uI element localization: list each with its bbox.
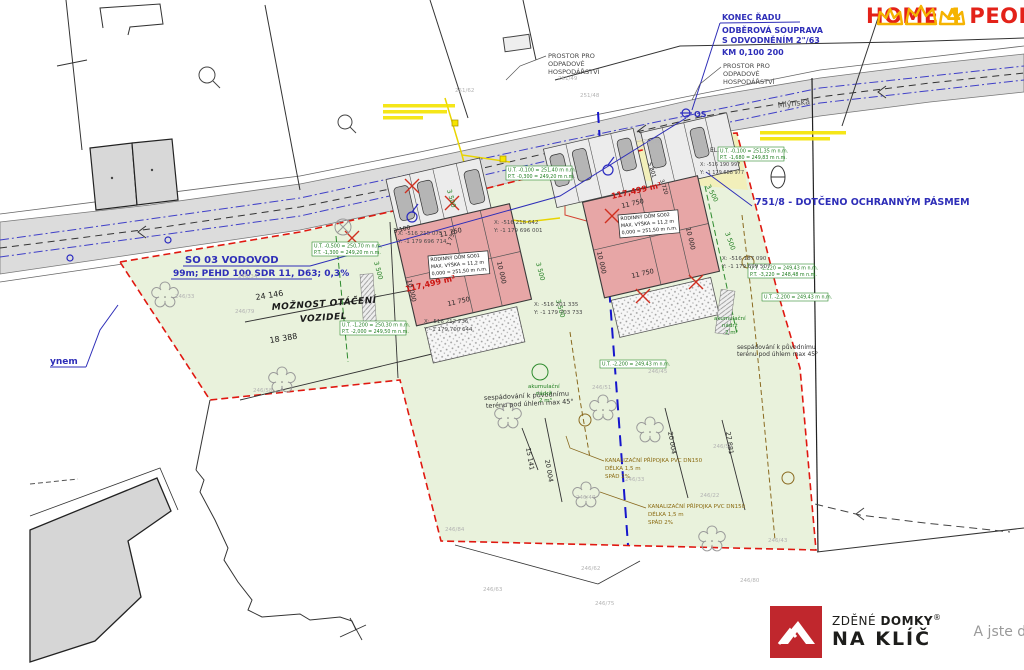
survey-point-symbols [199,34,531,133]
home4people-logo: HOME 4 PEOPLE [866,4,1016,28]
zigzag-boundary [196,470,356,630]
plan-label: 246/47 [576,495,596,501]
plan-label: X: -516 215 075 [398,231,443,237]
plan-label: 251/49 [558,76,578,82]
plan-label: 246/51 [592,385,611,391]
plan-label: ODPADOVÉ [548,59,585,68]
plan-label: Y: -1 179 688 977 [699,170,744,176]
plan-box-line: U.T. -0,100 = 251,40 m n.m. [508,168,576,174]
plan-box-line: U.T. -0,100 = 251,35 m n.m. [720,149,788,155]
note-odvodneni: S ODVODNĚNÍM 2"/63 [722,34,820,45]
naklic-logo: ZDĚNÉ DOMKY® NA KLÍČ A jste doma. [770,598,1020,666]
naklic-zdene: ZDĚNÉ [832,614,876,628]
note-konec-radu: KONEC ŘADU [722,11,781,22]
note-ynem: ynem [50,357,78,367]
plan-label: Y: -1 179 699 507 [721,264,771,270]
plan-label: 246/58 [253,388,273,394]
plan-label: 251/48 [580,93,600,99]
plan-label-box: U.T. -0,100 = 251,40 m n.m.P.T. -0,300 =… [506,166,576,180]
plan-box-line: U.T. -2,200 = 249,43 m n.m. [764,295,832,301]
plan-label: nádrž [722,322,738,329]
plan-box-line: P.T. -2,000 = 249,50 m n.m. [342,329,409,335]
plan-label: SPÁD 2% [648,519,673,526]
crowns-icon [866,4,976,28]
plan-label: 2 m³ [725,329,738,336]
plan-box-line: U.T. -2,200 = 249,43 m n.m. [602,362,670,368]
plan-label: terénu pod úhlem max 45° [737,351,818,358]
plan-box-line: P.T. -1,300 = 249,20 m n.m. [314,250,381,256]
existing-building-bottomleft [30,400,366,662]
plan-label: 246/34 [238,274,258,280]
plan-label: Y: -1 179 696 001 [493,228,542,234]
note-so03-spec: 99m; PEHD 100 SDR 11, D63; 0,3% [173,269,349,279]
plan-label: 246/33 [625,477,645,483]
plan-box-line: P.T. -3,220 = 248,48 m n.m. [750,272,817,278]
existing-building-topleft [90,139,178,210]
plan-label: 246/22 [700,493,719,499]
plan-label: X: -516 187 090 [722,256,767,262]
plan-label: 251/62 [455,88,474,94]
plan-label: 246/75 [595,601,615,607]
plan-label: Y: -1 179 696 714 [397,239,447,245]
plan-box-line: P.T. -1,680 = 249,83 m n.m. [720,155,787,161]
plan-box-line: P.T. -0,300 = 249,20 m n.m. [508,174,575,180]
plan-label: 2 m³ [539,397,552,404]
plan-label: Y: -1 179 703 733 [533,310,583,316]
plan-label: PROSTOR PRO [723,62,770,70]
site-plan-drawing: RODINNÝ DŮM SO01MAX. VÝŠKA = 11,2 m0,000… [0,0,1024,670]
plan-label: 246/80 [740,578,760,584]
note-akumulacni-nadrz: akumulační [714,315,746,322]
label-box-so02: RODINNÝ DŮM SO02MAX. VÝŠKA = 11,2 m0,000… [618,210,680,238]
logo-word-people: PEOPLE [969,4,1024,28]
plan-box-line: U.T. -0,500 = 250,70 m n.m. [314,244,382,250]
plan-label: X: -516 212 736 [424,319,469,325]
plan-label: 246/45 [648,369,668,375]
note-el: EL. [710,147,719,154]
plan-label: 246/63 [483,587,503,593]
note-odberova-souprava: ODBĚROVÁ SOUPRAVA [722,24,824,35]
plan-label-box: U.T. -0,100 = 251,35 m n.m.P.T. -1,680 =… [718,147,788,161]
plan-label: X: -516 218 642 [494,220,538,226]
plan-label-box: U.T. -2,200 = 249,43 m n.m. [762,293,832,301]
plan-label: DÉLKA 1,5 m [605,464,641,472]
plan-label: 246/43 [768,538,788,544]
plan-label: Y: -1 179 700 644 [423,327,473,333]
plan-label: 246/33 [175,294,195,300]
note-km: KM 0,100 200 [722,48,784,57]
note-ochranne-pasmo: 751/8 - DOTČENO OCHRANNÝM PÁSMEM [755,196,970,208]
naklic-domky: DOMKY [880,614,933,628]
naklic-tagline: A jste doma. [974,624,1024,640]
plan-label: 246/62 [581,566,600,572]
plan-label: DÉLKA 1,5 m [648,510,684,518]
note-akumulacni-nadrz: akumulační [528,383,560,390]
plan-label: nádrž [536,390,552,397]
plan-label: X: -516 190 997 [700,162,740,168]
plan-label: HOSPODÁŘSTVÍ [548,67,600,76]
plan-label: 246/59 [713,444,733,450]
site-plan-page: RODINNÝ DŮM SO01MAX. VÝŠKA = 11,2 m0,000… [0,0,1024,670]
note-os: OS [694,110,707,119]
plan-label: 251/19 [643,139,661,145]
plan-label: PROSTOR PRO [548,52,595,60]
label-box-so01: RODINNÝ DŮM SO01MAX. VÝŠKA = 11,2 m0,000… [428,251,490,279]
plan-label: HOSPODÁŘSTVÍ [723,77,775,86]
plan-label-box: U.T. -1,200 = 250,30 m n.m.P.T. -2,000 =… [340,321,410,335]
naklic-wordmark: ZDĚNÉ DOMKY® NA KLÍČ [832,614,942,649]
plan-label: 246/79 [235,309,255,315]
plan-label-box: U.T. -0,500 = 250,70 m n.m.P.T. -1,300 =… [312,242,382,256]
note-so03-vodovod: SO 03 VODOVOD [185,255,279,266]
naklic-naklic: NA KLÍČ [832,629,942,650]
plan-label-box: U.T. -2,200 = 249,43 m n.m. [600,360,670,368]
note-kanalizace-1: KANALIZAČNÍ PŘÍPOJKA PVC DN150 [605,456,703,464]
plan-label: sespádování k původnímu [737,344,816,351]
note-kanalizace-2: KANALIZAČNÍ PŘÍPOJKA PVC DN150 [648,502,746,510]
plan-label: X: -516 201 335 [534,302,579,308]
plan-label: ODPADOVÉ [723,69,760,78]
registered-mark: ® [933,613,942,622]
naklic-roof-icon [770,606,822,658]
plan-box-line: U.T. -1,200 = 250,30 m n.m. [342,323,410,329]
plan-label: 246/84 [445,527,465,533]
